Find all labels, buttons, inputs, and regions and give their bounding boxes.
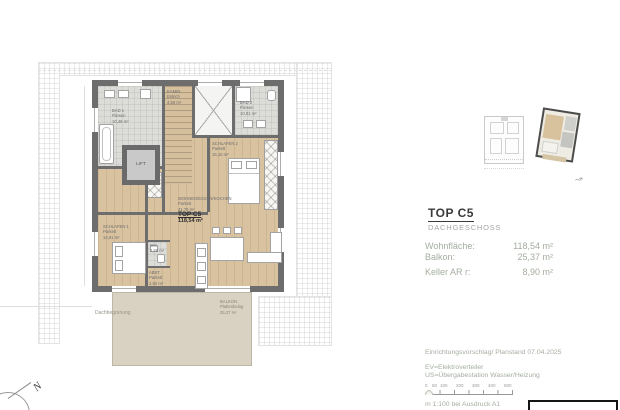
bed-single <box>112 242 146 274</box>
unit-title: TOP C5 <box>428 206 474 222</box>
room-label-schlafen2: SCHLAFEN 2Parkett15,10 m² <box>212 141 238 157</box>
wardrobe-schlafen2 <box>264 140 278 210</box>
sink <box>256 120 266 128</box>
room-label-wc: WC2,56 m² <box>150 243 164 254</box>
window-top-3 <box>240 80 264 86</box>
window-top-1 <box>118 80 142 86</box>
wall-stairwell-left <box>192 86 195 138</box>
north-arrow-icon <box>0 392 30 410</box>
unit-badge: TOP C5 118,54 m² <box>178 211 203 224</box>
room-label-abst: ABST.Parkett2,92 m² <box>149 270 163 286</box>
area-row-value: 8,90 m² <box>522 267 553 277</box>
roof-grid-top <box>38 62 332 76</box>
keyplan-outline <box>484 116 524 164</box>
wall-stairwell-right <box>232 86 235 138</box>
room-label-bad1: BAD 1Fliesen10,46 m² <box>112 108 129 124</box>
roof-grid-bottom-right <box>258 296 332 346</box>
window-bottom-1 <box>112 286 136 292</box>
scale-tick: 300 <box>472 383 480 388</box>
stairwell-void <box>195 86 232 135</box>
keyplan-highlighted <box>535 107 580 162</box>
legend-us: US=Übergabestation Wasser/Heizung <box>425 371 540 380</box>
balcony-door <box>205 286 250 292</box>
washer <box>140 89 151 99</box>
chair <box>234 227 242 234</box>
floorplan-sheet: LIFT BAD 1Fliesen10,46 m² BAD <box>0 0 620 410</box>
sink <box>243 120 253 128</box>
window-top-2 <box>198 80 222 86</box>
keyplan-dimension <box>484 168 524 169</box>
roof-grid-left <box>38 62 60 344</box>
toilet <box>267 90 276 101</box>
north-mark-icon: ↝ <box>573 173 584 186</box>
stamp-box <box>528 400 618 410</box>
floor-label: DACHGESCHOSS <box>428 223 501 232</box>
plan-note: Einrichtungsvorschlag/ Planstand 07.04.2… <box>425 348 561 357</box>
dimension-line-left <box>0 306 92 307</box>
scale-tick: 50 <box>432 383 437 388</box>
dining-table <box>210 237 244 261</box>
area-row-label: Wohnfläche: <box>425 241 475 251</box>
window-left-1 <box>92 108 98 132</box>
lift-label: LIFT <box>136 162 146 167</box>
wall-wc-top <box>145 240 170 242</box>
kitchen-counter <box>195 243 208 289</box>
sofa <box>247 252 282 263</box>
wall-mid-horizontal <box>192 135 281 138</box>
window-right-1 <box>278 152 284 176</box>
dimension-line-vertical <box>84 86 85 286</box>
room-label-bad2: BAD 2Fliesen10,01 m² <box>240 100 257 116</box>
chair <box>212 227 220 234</box>
scale-bar: 0 50 100 200 300 400 500 <box>425 383 517 399</box>
scale-tick: 400 <box>488 383 496 388</box>
dimension-line-top <box>38 70 332 71</box>
bathtub <box>99 124 114 164</box>
scale-tick: 100 <box>440 383 448 388</box>
area-row-value: 25,37 m² <box>517 252 553 262</box>
room-label-kamin: KAMINEstrich4,50 m² <box>167 89 191 105</box>
scale-tick: 0 <box>425 383 428 388</box>
lift-shaft: LIFT <box>122 145 160 185</box>
scale-tick: 500 <box>504 383 512 388</box>
toilet <box>157 254 165 263</box>
room-label-wohnen: WOHNEN/ESSEN/KOCHENParkett41,76 m² <box>178 196 232 212</box>
window-left-2 <box>92 232 98 256</box>
bed-double <box>228 158 260 204</box>
sink <box>118 90 129 98</box>
chair <box>223 227 231 234</box>
room-label-schlafen1: SCHLAFEN 1Parkett14,91 m² <box>103 224 129 240</box>
roof-greening-label: Dachbegrünung <box>95 310 131 316</box>
scale-tick: 200 <box>456 383 464 388</box>
area-row-label: Keller AR r: <box>425 267 471 277</box>
room-label-balkon: BALKONPlattenbelag25,37 m² <box>220 299 243 315</box>
area-row-value: 118,54 m² <box>513 241 553 251</box>
wall-wc-bottom <box>145 266 170 268</box>
sink <box>104 90 115 98</box>
wall-bad1-right <box>162 86 165 212</box>
area-row-label: Balkon: <box>425 252 455 262</box>
north-label: N <box>31 380 44 394</box>
scale-caption: m 1:100 bei Ausdruck A1 <box>425 400 500 409</box>
